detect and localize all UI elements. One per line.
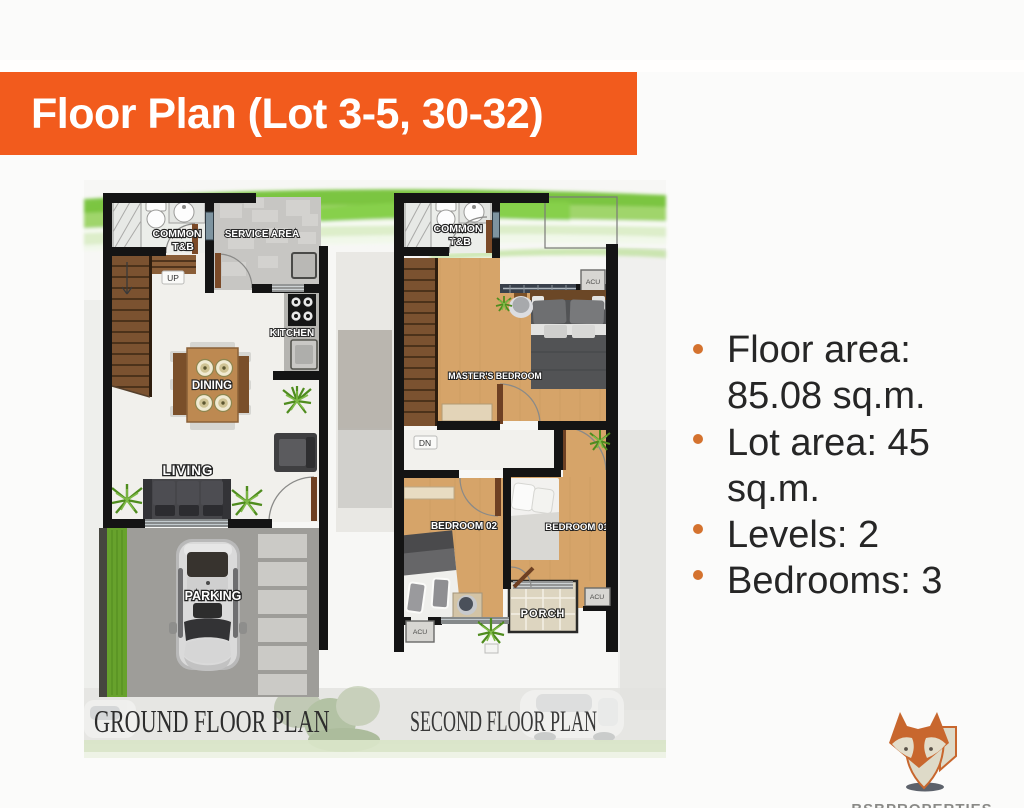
svg-text:LIVING: LIVING bbox=[162, 463, 213, 478]
svg-text:ACU: ACU bbox=[586, 279, 600, 286]
svg-text:T&B: T&B bbox=[172, 241, 194, 253]
svg-text:ACU: ACU bbox=[413, 629, 427, 636]
svg-text:PORCH: PORCH bbox=[521, 608, 566, 620]
svg-text:UP: UP bbox=[167, 273, 179, 283]
svg-text:MASTER'S BEDROOM: MASTER'S BEDROOM bbox=[448, 371, 541, 381]
svg-text:DN: DN bbox=[419, 438, 431, 448]
svg-text:SERVICE AREA: SERVICE AREA bbox=[225, 229, 299, 240]
svg-text:COMMON: COMMON bbox=[434, 223, 483, 235]
svg-text:COMMON: COMMON bbox=[153, 228, 202, 240]
svg-text:BEDROOM 02: BEDROOM 02 bbox=[431, 521, 498, 532]
svg-text:KITCHEN: KITCHEN bbox=[270, 328, 314, 339]
svg-text:BEDROOM 01: BEDROOM 01 bbox=[545, 522, 609, 533]
svg-text:DINING: DINING bbox=[192, 380, 232, 392]
svg-text:PARKING: PARKING bbox=[185, 589, 242, 603]
svg-text:ACU: ACU bbox=[590, 594, 604, 601]
